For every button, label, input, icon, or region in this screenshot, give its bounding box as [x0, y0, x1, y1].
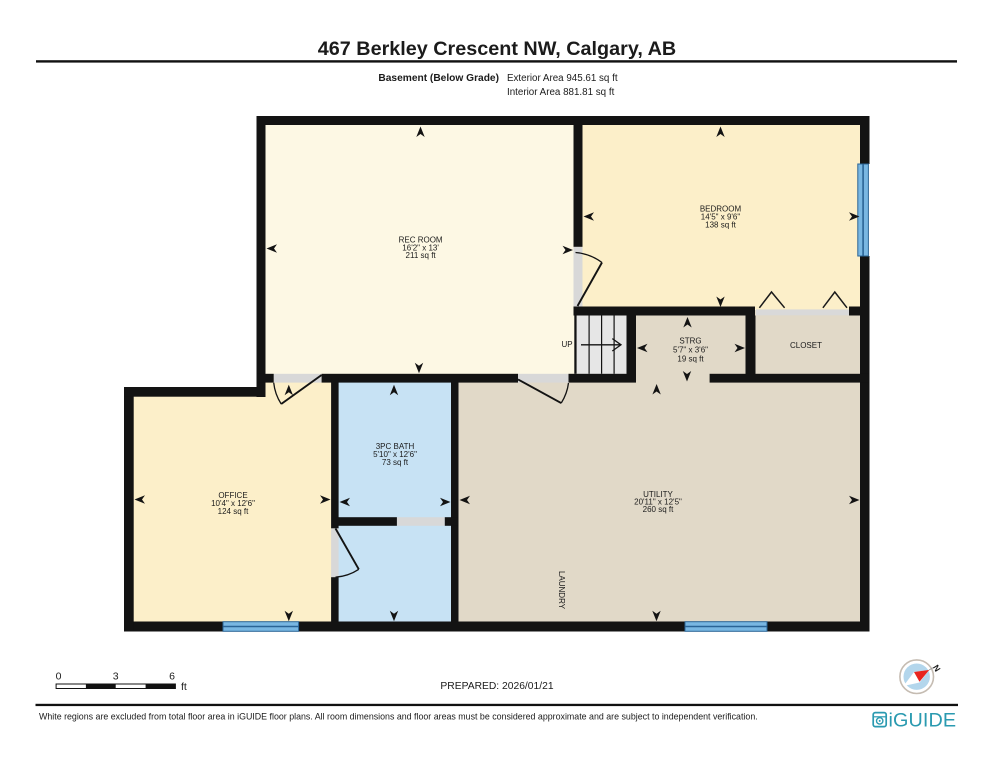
svg-text:138 sq ft: 138 sq ft	[705, 221, 736, 230]
svg-text:73 sq ft: 73 sq ft	[382, 458, 409, 467]
svg-text:467 Berkley Crescent NW, Calga: 467 Berkley Crescent NW, Calgary, AB	[318, 38, 676, 60]
svg-text:Exterior Area 945.61 sq ft: Exterior Area 945.61 sq ft	[507, 73, 618, 84]
svg-text:19 sq ft: 19 sq ft	[677, 354, 704, 363]
svg-text:260 sq ft: 260 sq ft	[643, 505, 674, 514]
svg-text:PREPARED: 2026/01/21: PREPARED: 2026/01/21	[440, 681, 553, 692]
svg-text:iGUIDE: iGUIDE	[889, 710, 957, 732]
svg-text:LAUNDRY: LAUNDRY	[557, 571, 566, 610]
svg-text:STRG: STRG	[679, 336, 701, 345]
svg-text:0: 0	[56, 671, 62, 683]
svg-text:White regions are excluded fro: White regions are excluded from total fl…	[39, 712, 758, 722]
svg-text:124 sq ft: 124 sq ft	[218, 507, 249, 516]
svg-text:CLOSET: CLOSET	[790, 341, 822, 350]
svg-text:6: 6	[169, 671, 175, 683]
svg-text:Interior Area 881.81 sq ft: Interior Area 881.81 sq ft	[507, 87, 615, 98]
svg-text:ft: ft	[181, 681, 187, 693]
svg-text:211 sq ft: 211 sq ft	[406, 251, 437, 260]
svg-text:UP: UP	[561, 340, 572, 349]
svg-text:5'7" x 3'6": 5'7" x 3'6"	[673, 345, 708, 354]
svg-text:3: 3	[113, 671, 119, 683]
svg-text:Basement (Below Grade): Basement (Below Grade)	[378, 73, 499, 84]
